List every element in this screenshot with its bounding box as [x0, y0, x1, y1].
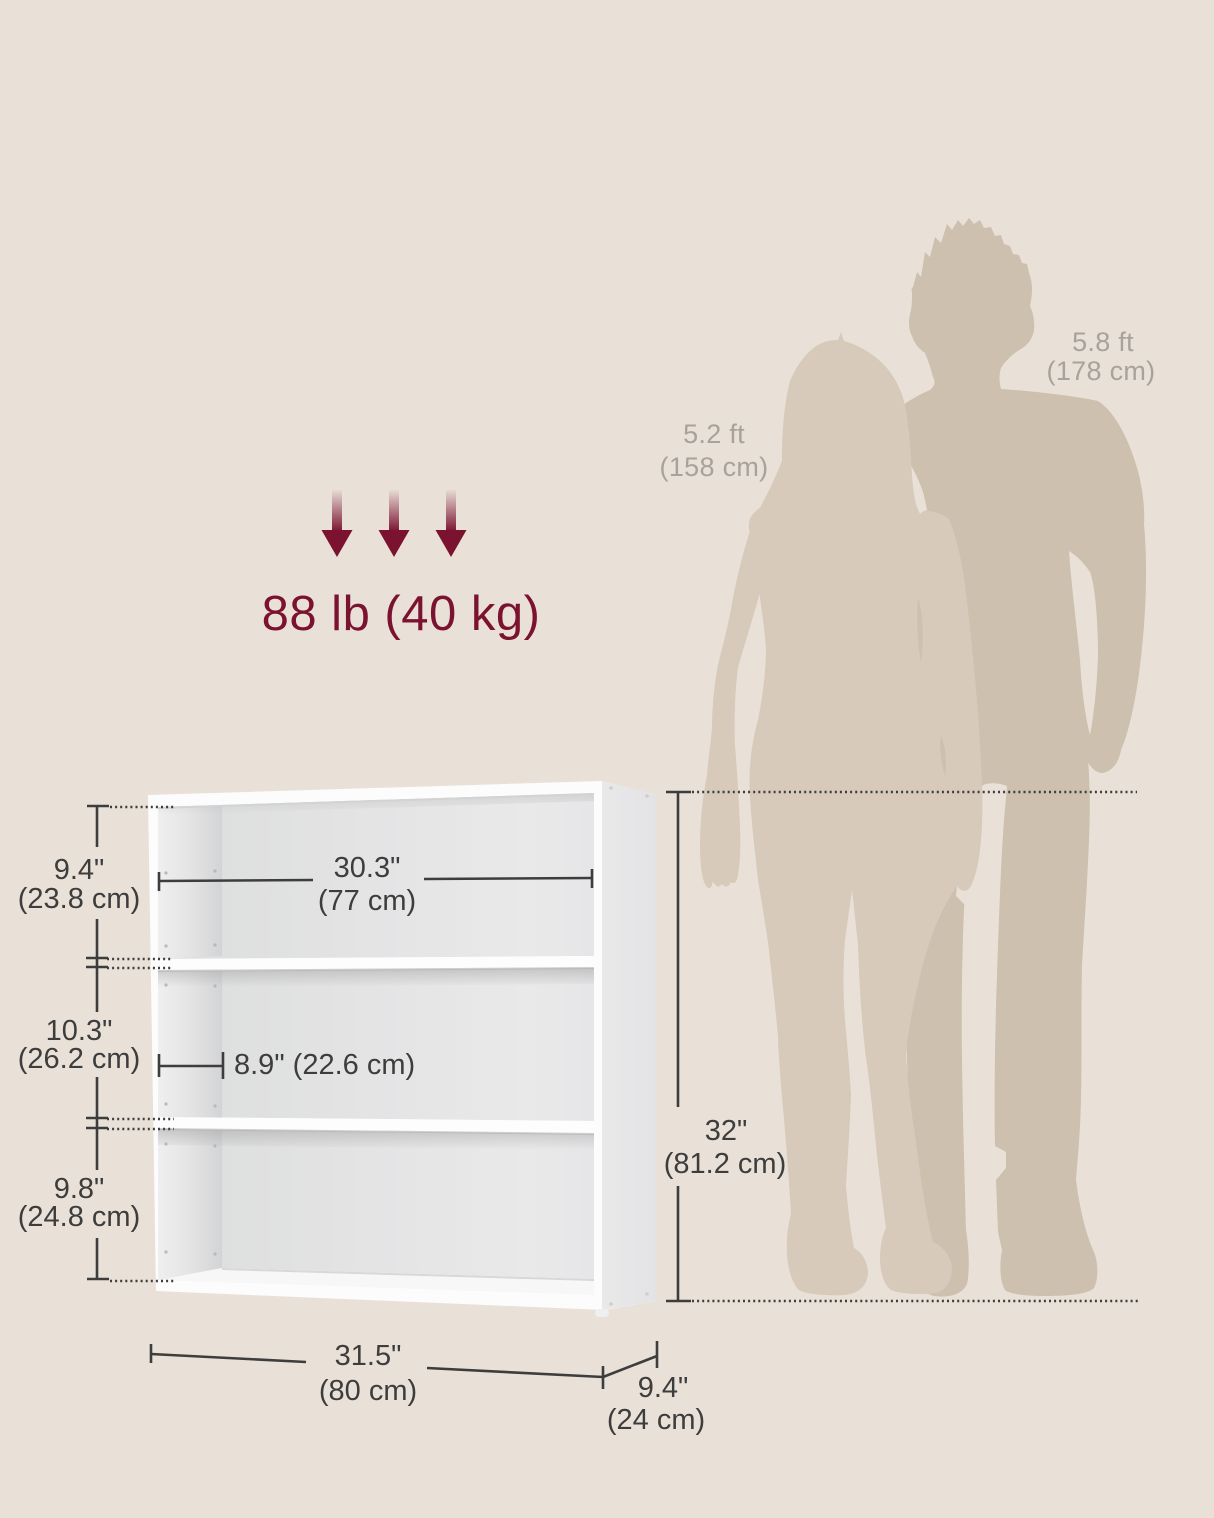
svg-text:(24 cm): (24 cm)	[607, 1404, 705, 1436]
svg-text:(24.8 cm): (24.8 cm)	[18, 1201, 140, 1233]
svg-text:88 lb (40 kg): 88 lb (40 kg)	[262, 587, 541, 641]
svg-text:9.4": 9.4"	[638, 1372, 689, 1404]
svg-text:(23.8 cm): (23.8 cm)	[18, 883, 140, 915]
svg-text:32": 32"	[705, 1115, 748, 1147]
svg-text:31.5": 31.5"	[335, 1340, 402, 1372]
svg-text:5.8 ft: 5.8 ft	[1072, 327, 1134, 357]
svg-text:9.4": 9.4"	[54, 854, 105, 886]
svg-text:(80 cm): (80 cm)	[319, 1375, 417, 1407]
svg-text:8.9" (22.6 cm): 8.9" (22.6 cm)	[234, 1049, 415, 1081]
svg-text:(81.2 cm): (81.2 cm)	[664, 1148, 786, 1180]
svg-text:5.2 ft: 5.2 ft	[683, 419, 745, 449]
svg-text:(77 cm): (77 cm)	[318, 885, 416, 917]
svg-text:30.3": 30.3"	[334, 852, 401, 884]
svg-text:(26.2 cm): (26.2 cm)	[18, 1043, 140, 1075]
svg-text:(158 cm): (158 cm)	[660, 452, 769, 482]
svg-text:(178 cm): (178 cm)	[1047, 356, 1156, 386]
